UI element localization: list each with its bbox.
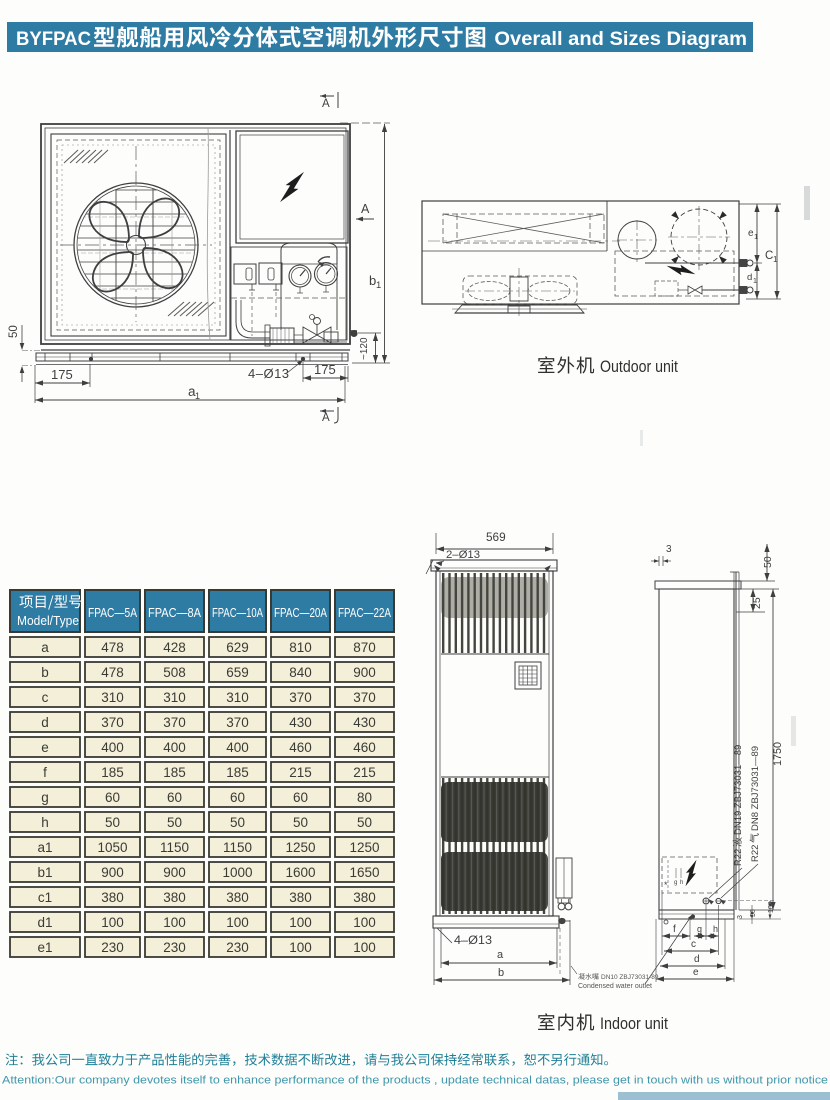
svg-text:2–Ø13: 2–Ø13: [446, 549, 480, 561]
svg-text:FPAC—8A: FPAC—8A: [148, 605, 201, 620]
svg-text:1: 1: [773, 255, 778, 264]
svg-text:380: 380: [163, 890, 186, 905]
svg-text:478: 478: [101, 665, 124, 680]
svg-text:900: 900: [101, 865, 124, 880]
svg-text:Overall and Sizes Diagram: Overall and Sizes Diagram: [494, 29, 747, 50]
svg-text:508: 508: [163, 665, 186, 680]
svg-text:50: 50: [230, 815, 245, 830]
svg-text:100: 100: [226, 915, 249, 930]
svg-text:215: 215: [353, 765, 376, 780]
svg-text:A: A: [361, 202, 370, 216]
svg-text:h: h: [713, 924, 718, 934]
svg-text:b1: b1: [37, 865, 52, 880]
svg-text:460: 460: [289, 740, 312, 755]
svg-text:Model/Type: Model/Type: [17, 613, 79, 628]
svg-text:310: 310: [226, 690, 249, 705]
svg-text:185: 185: [101, 765, 124, 780]
svg-text:Outdoor unit: Outdoor unit: [600, 358, 678, 376]
svg-text:50: 50: [750, 909, 757, 917]
svg-text:e: e: [693, 967, 699, 978]
svg-text:DN19 ZBJ73031—89: DN19 ZBJ73031—89: [733, 745, 744, 835]
svg-text:380: 380: [226, 890, 249, 905]
svg-text:A: A: [322, 98, 330, 110]
svg-text:185: 185: [163, 765, 186, 780]
svg-text:60: 60: [105, 790, 120, 805]
svg-text:430: 430: [289, 715, 312, 730]
svg-text:g: g: [674, 880, 677, 886]
svg-text:25: 25: [751, 597, 763, 609]
svg-text:80: 80: [357, 790, 372, 805]
svg-text:400: 400: [163, 740, 186, 755]
svg-text:Indoor unit: Indoor unit: [600, 1015, 668, 1033]
svg-text:310: 310: [163, 690, 186, 705]
svg-text:870: 870: [353, 640, 376, 655]
svg-text:50: 50: [293, 815, 308, 830]
svg-text:3: 3: [666, 544, 672, 555]
svg-text:900: 900: [163, 865, 186, 880]
svg-text:f: f: [43, 765, 47, 780]
svg-text:a1: a1: [37, 840, 52, 855]
svg-text:1650: 1650: [349, 865, 379, 880]
svg-text:230: 230: [226, 940, 249, 955]
svg-text:100: 100: [163, 915, 186, 930]
svg-text:a: a: [497, 949, 504, 961]
svg-text:50: 50: [8, 325, 20, 338]
svg-text:100: 100: [101, 915, 124, 930]
svg-text:1250: 1250: [285, 840, 315, 855]
svg-text:h: h: [680, 880, 683, 886]
svg-text:DN10 ZBJ73031-89: DN10 ZBJ73031-89: [601, 974, 659, 981]
svg-text:Attention:Our company devotes: Attention:Our company devotes itself to …: [2, 1075, 828, 1087]
svg-text:BYFPAC: BYFPAC: [16, 28, 91, 50]
svg-text:b: b: [41, 665, 49, 680]
svg-text:370: 370: [101, 715, 124, 730]
svg-text:4–Ø13: 4–Ø13: [454, 933, 492, 947]
svg-text:175: 175: [314, 362, 336, 377]
svg-text:1: 1: [754, 232, 758, 241]
svg-text:c: c: [691, 939, 696, 950]
svg-text:~120: ~120: [359, 337, 370, 360]
svg-text:370: 370: [289, 690, 312, 705]
svg-text:380: 380: [101, 890, 124, 905]
svg-text:c: c: [42, 690, 49, 705]
svg-text:230: 230: [163, 940, 186, 955]
svg-text:659: 659: [226, 665, 249, 680]
svg-text:50: 50: [762, 556, 774, 568]
svg-text:a: a: [41, 640, 49, 655]
svg-text:60: 60: [230, 790, 245, 805]
svg-text:1150: 1150: [160, 840, 189, 855]
svg-text:4–Ø13: 4–Ø13: [248, 366, 290, 381]
svg-text:185: 185: [226, 765, 249, 780]
svg-text:370: 370: [226, 715, 249, 730]
svg-text:840: 840: [289, 665, 312, 680]
svg-text:h: h: [41, 815, 49, 830]
svg-text:430: 430: [353, 715, 376, 730]
svg-text:215: 215: [289, 765, 312, 780]
svg-text:c1: c1: [38, 890, 52, 905]
svg-text:380: 380: [353, 890, 376, 905]
svg-text:100: 100: [289, 940, 312, 955]
svg-text:400: 400: [101, 740, 124, 755]
svg-text:1750: 1750: [772, 742, 784, 766]
svg-text:b: b: [498, 967, 504, 979]
svg-text:DN8 ZBJ73031—89: DN8 ZBJ73031—89: [750, 746, 761, 831]
svg-text:400: 400: [226, 740, 249, 755]
svg-text:1050: 1050: [97, 840, 127, 855]
svg-text:810: 810: [289, 640, 312, 655]
svg-text:310: 310: [101, 690, 124, 705]
svg-text:100: 100: [353, 915, 376, 930]
svg-text:1000: 1000: [222, 865, 252, 880]
svg-text:e: e: [41, 740, 49, 755]
svg-text:FPAC—22A: FPAC—22A: [338, 605, 391, 620]
svg-text:460: 460: [353, 740, 376, 755]
svg-text:1600: 1600: [285, 865, 315, 880]
svg-text:380: 380: [289, 890, 312, 905]
svg-text:60: 60: [293, 790, 308, 805]
svg-text:370: 370: [353, 690, 376, 705]
svg-text:f: f: [673, 924, 676, 935]
svg-text:175: 175: [51, 367, 73, 382]
svg-text:*: *: [664, 880, 668, 890]
svg-text:1150: 1150: [223, 840, 252, 855]
svg-text:100: 100: [289, 915, 312, 930]
svg-text:R22: R22: [750, 845, 761, 862]
svg-text:A: A: [322, 412, 330, 424]
svg-text:e1: e1: [37, 940, 52, 955]
svg-text:230: 230: [101, 940, 124, 955]
svg-text:FPAC—10A: FPAC—10A: [212, 605, 263, 620]
svg-text:Condensed water outlet: Condensed water outlet: [578, 983, 652, 990]
svg-text:1: 1: [195, 391, 200, 401]
svg-text:FPAC—5A: FPAC—5A: [88, 605, 137, 620]
svg-text:569: 569: [486, 530, 506, 544]
svg-text:100: 100: [768, 901, 775, 913]
svg-text:g: g: [697, 924, 702, 934]
svg-text:R22: R22: [733, 849, 744, 866]
svg-text:1250: 1250: [349, 840, 379, 855]
svg-text:629: 629: [226, 640, 249, 655]
svg-text:1: 1: [753, 278, 757, 285]
svg-text:900: 900: [353, 665, 376, 680]
svg-text:1: 1: [376, 280, 381, 291]
svg-text:d1: d1: [37, 915, 52, 930]
svg-text:478: 478: [101, 640, 124, 655]
svg-text:d: d: [747, 272, 752, 283]
svg-text:428: 428: [163, 640, 186, 655]
svg-text:g: g: [41, 790, 49, 805]
svg-text:50: 50: [105, 815, 120, 830]
svg-text:60: 60: [167, 790, 182, 805]
svg-text:50: 50: [357, 815, 372, 830]
svg-text:d: d: [694, 954, 700, 965]
svg-text:370: 370: [163, 715, 186, 730]
svg-text:3: 3: [737, 915, 744, 919]
svg-text:FPAC—20A: FPAC—20A: [274, 605, 327, 620]
svg-text:50: 50: [167, 815, 182, 830]
svg-text:d: d: [41, 715, 49, 730]
svg-text:100: 100: [353, 940, 376, 955]
